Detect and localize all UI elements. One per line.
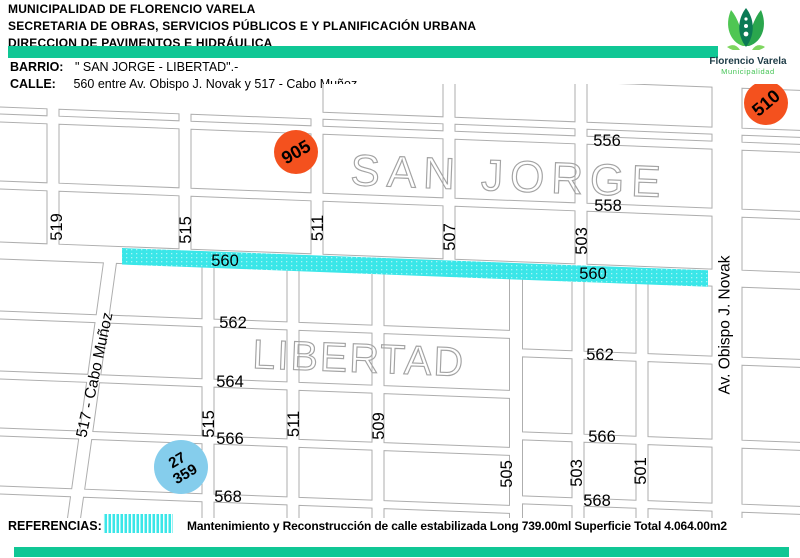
referencias-swatch (103, 514, 173, 533)
street-label-505: 505 (498, 460, 516, 488)
street-label-519: 519 (48, 213, 66, 241)
city-block (323, 84, 443, 117)
city-block (59, 124, 179, 188)
city-block (299, 447, 372, 500)
city-block (523, 504, 573, 518)
district-label-libertad: LIBERTAD (252, 331, 466, 385)
city-block (455, 124, 575, 136)
city-block (191, 196, 311, 254)
city-block (742, 287, 800, 360)
street-label-566: 566 (216, 430, 244, 448)
street-label-560-highlight: 560 (579, 265, 607, 283)
street-label-503: 503 (573, 227, 591, 255)
city-block (0, 258, 103, 315)
street-label-564: 564 (216, 373, 244, 391)
street-label-556: 556 (593, 132, 621, 150)
city-block (742, 512, 800, 518)
street-label-568: 568 (583, 492, 611, 510)
city-block (523, 279, 573, 351)
city-block (93, 383, 202, 436)
street-label-503: 503 (568, 459, 586, 487)
city-block (0, 493, 71, 518)
city-block (0, 188, 47, 244)
city-block (299, 505, 372, 518)
street-label-515: 515 (177, 216, 195, 244)
city-block (384, 451, 510, 506)
header-line-1: MUNICIPALIDAD DE FLORENCIO VARELA (8, 2, 256, 16)
city-block (648, 445, 712, 504)
referencias-label: REFERENCIAS: (8, 519, 102, 533)
bottom-accent-bar (14, 547, 789, 557)
street-label-509: 509 (370, 412, 388, 440)
city-block (0, 378, 87, 431)
barrio-value: " SAN JORGE - LIBERTAD".- (75, 60, 238, 74)
street-label-566: 566 (588, 428, 616, 446)
barrio-label: BARRIO: (10, 60, 63, 74)
city-block (59, 109, 179, 121)
street-label-515: 515 (200, 410, 218, 438)
street-label-511: 511 (309, 215, 327, 241)
logo-title: Florencio Varela (704, 56, 792, 67)
street-label-562: 562 (586, 346, 614, 364)
city-block (384, 394, 510, 448)
street-map: SAN JORGELIBERTAD55655856256256456656656… (0, 84, 800, 518)
street-label-511: 511 (285, 411, 303, 437)
marker-905: 905 (274, 130, 318, 174)
city-block (455, 84, 575, 122)
street-label-501: 501 (632, 457, 650, 485)
city-block (587, 211, 712, 269)
city-block (587, 84, 712, 127)
city-block (323, 201, 443, 258)
city-block (101, 323, 202, 379)
city-block (384, 509, 510, 518)
city-block (455, 206, 575, 264)
city-block (584, 281, 636, 353)
city-block (648, 284, 712, 357)
header-line-2: SECRETARIA DE OBRAS, SERVICIOS PÚBLICOS … (8, 19, 476, 33)
street-label-562: 562 (219, 314, 247, 332)
city-block (523, 440, 573, 498)
city-block (191, 114, 311, 126)
barrio-row: BARRIO: " SAN JORGE - LIBERTAD".- (10, 60, 238, 74)
city-block (0, 121, 47, 183)
city-block (323, 119, 443, 131)
street-label-507: 507 (441, 223, 459, 251)
top-accent-bar (8, 46, 718, 58)
city-block (109, 263, 202, 318)
city-block (584, 359, 636, 436)
city-block (0, 106, 47, 116)
city-block (59, 191, 179, 249)
city-block (523, 357, 573, 434)
city-block (742, 150, 800, 212)
city-block (742, 365, 800, 443)
city-block (648, 509, 712, 518)
city-block (0, 318, 95, 374)
city-block (742, 217, 800, 273)
document-page: MUNICIPALIDAD DE FLORENCIO VARELA SECRET… (0, 0, 800, 558)
city-block (299, 270, 372, 325)
city-block (0, 435, 79, 489)
street-label-560-highlight: 560 (211, 252, 239, 270)
city-block (299, 390, 372, 442)
city-block (742, 448, 800, 507)
street-label-558: 558 (594, 197, 622, 215)
street-label-av-obispo-j-novak: Av. Obispo J. Novak (717, 255, 734, 394)
city-block (742, 135, 800, 145)
city-block (384, 274, 510, 331)
referencias-description: Mantenimiento y Reconstrucción de calle … (187, 519, 727, 533)
street-label-568: 568 (214, 488, 242, 506)
logo-emblem (704, 2, 792, 50)
municipality-logo: Florencio Varela Municipalidad (704, 2, 792, 72)
city-block (648, 362, 712, 440)
marker-27-359: 27359 (154, 440, 208, 494)
logo-subtitle: Municipalidad (704, 67, 792, 76)
